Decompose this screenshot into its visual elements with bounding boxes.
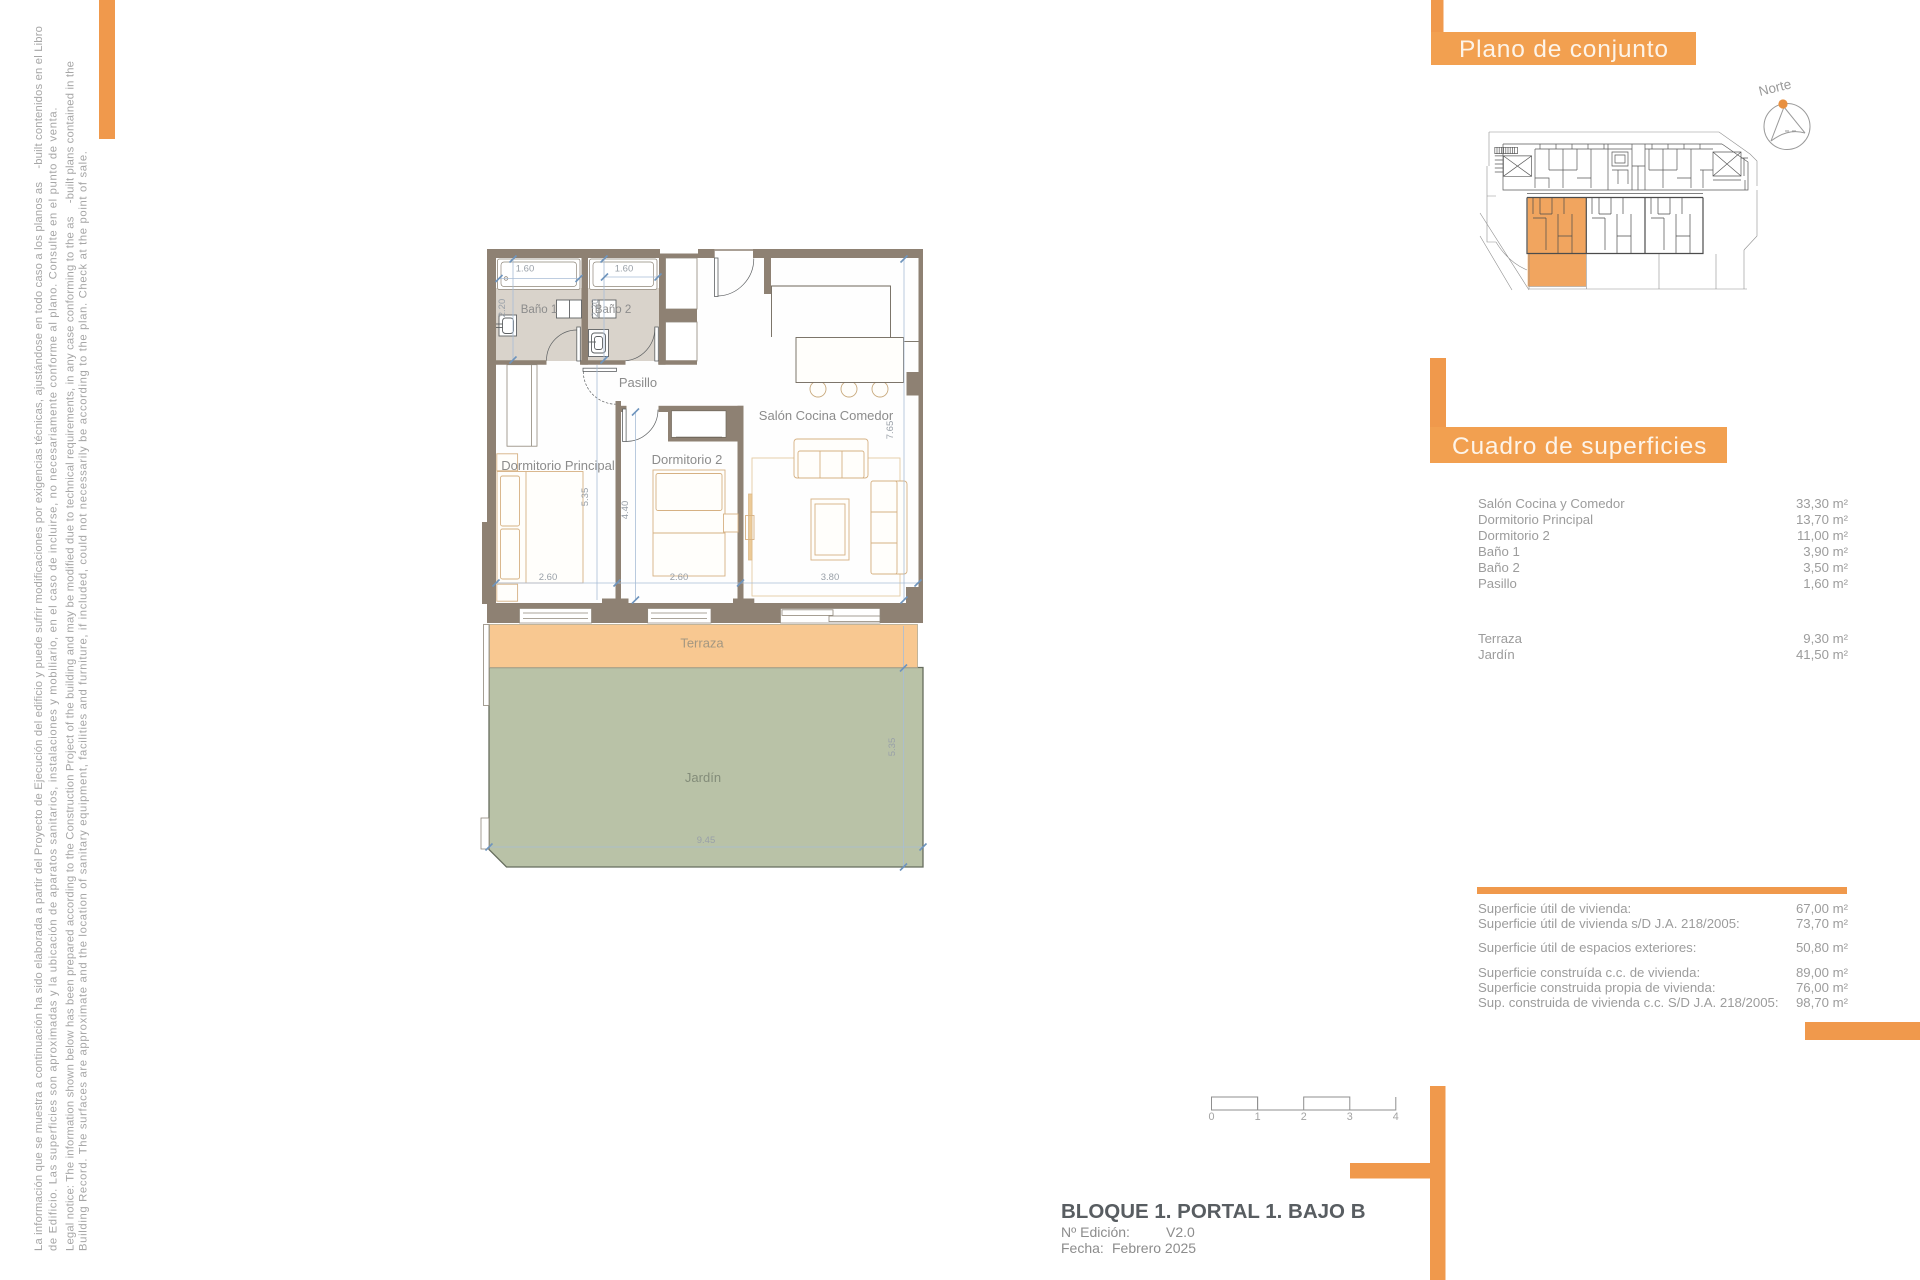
svg-text:Jardín: Jardín bbox=[685, 770, 721, 785]
svg-text:Terraza: Terraza bbox=[680, 636, 724, 651]
svg-text:Superficie construida propia d: Superficie construida propia de vivienda… bbox=[1478, 980, 1716, 995]
svg-text:9.45: 9.45 bbox=[697, 835, 716, 846]
svg-text:Febrero 2025: Febrero 2025 bbox=[1112, 1240, 1196, 1256]
svg-text:89,00 m²: 89,00 m² bbox=[1796, 965, 1849, 980]
svg-text:2: 2 bbox=[1301, 1111, 1307, 1123]
svg-text:Pasillo: Pasillo bbox=[1478, 576, 1517, 591]
svg-text:50,80 m²: 50,80 m² bbox=[1796, 940, 1849, 955]
svg-text:76,00 m²: 76,00 m² bbox=[1796, 980, 1849, 995]
svg-text:1.60: 1.60 bbox=[615, 264, 634, 275]
svg-text:Dormitorio 2: Dormitorio 2 bbox=[1478, 528, 1550, 543]
svg-text:Baño 1: Baño 1 bbox=[1478, 544, 1520, 559]
svg-text:2.60: 2.60 bbox=[539, 572, 558, 583]
svg-text:Salón Cocina y Comedor: Salón Cocina y Comedor bbox=[1478, 496, 1625, 511]
svg-text:1: 1 bbox=[1255, 1111, 1261, 1123]
svg-text:98,70 m²: 98,70 m² bbox=[1796, 995, 1849, 1010]
svg-text:Salón Cocina Comedor: Salón Cocina Comedor bbox=[759, 408, 894, 423]
svg-text:Dormitorio 2: Dormitorio 2 bbox=[652, 452, 723, 467]
svg-text:Superficie útil de vivienda:: Superficie útil de vivienda: bbox=[1478, 901, 1631, 916]
svg-text:Dormitorio Principal: Dormitorio Principal bbox=[1478, 512, 1593, 527]
svg-text:5.35: 5.35 bbox=[887, 738, 898, 757]
svg-text:4.40: 4.40 bbox=[620, 501, 631, 520]
svg-text:2.20: 2.20 bbox=[497, 299, 508, 318]
svg-text:1,60 m²: 1,60 m² bbox=[1803, 576, 1848, 591]
svg-text:Building Record. The surfaces: Building Record. The surfaces are approx… bbox=[78, 150, 90, 1251]
svg-text:0: 0 bbox=[1208, 1111, 1214, 1123]
svg-text:9,30 m²: 9,30 m² bbox=[1803, 631, 1848, 646]
svg-text:Plano de conjunto: Plano de conjunto bbox=[1459, 36, 1669, 63]
svg-text:2.60: 2.60 bbox=[670, 572, 689, 583]
svg-text:Superficie útil de espacios ex: Superficie útil de espacios exteriores: bbox=[1478, 940, 1696, 955]
svg-text:3,50 m²: 3,50 m² bbox=[1803, 560, 1848, 575]
svg-text:33,30 m²: 33,30 m² bbox=[1796, 496, 1849, 511]
svg-text:V2.0: V2.0 bbox=[1166, 1224, 1195, 1240]
svg-text:13,70 m²: 13,70 m² bbox=[1796, 512, 1849, 527]
svg-text:BLOQUE 1. PORTAL 1. BAJO B: BLOQUE 1. PORTAL 1. BAJO B bbox=[1061, 1200, 1366, 1223]
svg-text:7.65: 7.65 bbox=[885, 421, 896, 440]
svg-text:Baño 2: Baño 2 bbox=[1478, 560, 1520, 575]
svg-text:Cuadro de superficies: Cuadro de superficies bbox=[1452, 433, 1707, 460]
svg-text:11,00 m²: 11,00 m² bbox=[1797, 528, 1849, 543]
svg-text:Nº Edición:: Nº Edición: bbox=[1061, 1224, 1130, 1240]
svg-text:73,70 m²: 73,70 m² bbox=[1796, 916, 1849, 931]
svg-text:Sup. construida de vivienda c.: Sup. construida de vivienda c.c. S/D J.A… bbox=[1478, 995, 1779, 1010]
svg-text:La información que se muestra: La información que se muestra a continua… bbox=[33, 26, 45, 1251]
svg-text:4: 4 bbox=[1393, 1111, 1399, 1123]
svg-text:67,00 m²: 67,00 m² bbox=[1796, 901, 1849, 916]
svg-text:3.80: 3.80 bbox=[821, 572, 840, 583]
svg-text:3: 3 bbox=[1347, 1111, 1353, 1123]
svg-text:Fecha:: Fecha: bbox=[1061, 1240, 1104, 1256]
svg-text:Jardín: Jardín bbox=[1478, 647, 1515, 662]
svg-text:Superficie útil de vivienda s/: Superficie útil de vivienda s/D J.A. 218… bbox=[1478, 916, 1740, 931]
svg-text:Superficie construída c.c. de: Superficie construída c.c. de vivienda: bbox=[1478, 965, 1700, 980]
svg-text:Baño 1: Baño 1 bbox=[521, 304, 557, 316]
svg-text:3,90 m²: 3,90 m² bbox=[1803, 544, 1848, 559]
svg-text:41,50 m²: 41,50 m² bbox=[1796, 647, 1849, 662]
svg-text:de Edificio. Las superficies s: de Edificio. Las superficies son aproxim… bbox=[48, 107, 60, 1251]
svg-text:Terraza: Terraza bbox=[1478, 631, 1523, 646]
svg-text:2.20: 2.20 bbox=[590, 299, 601, 318]
svg-text:Pasillo: Pasillo bbox=[619, 375, 657, 390]
svg-text:1.60: 1.60 bbox=[516, 264, 535, 275]
svg-text:5.35: 5.35 bbox=[580, 488, 591, 507]
svg-text:Legal notice: The information: Legal notice: The information shown belo… bbox=[65, 61, 77, 1251]
svg-text:Dormitorio Principal: Dormitorio Principal bbox=[501, 458, 615, 473]
